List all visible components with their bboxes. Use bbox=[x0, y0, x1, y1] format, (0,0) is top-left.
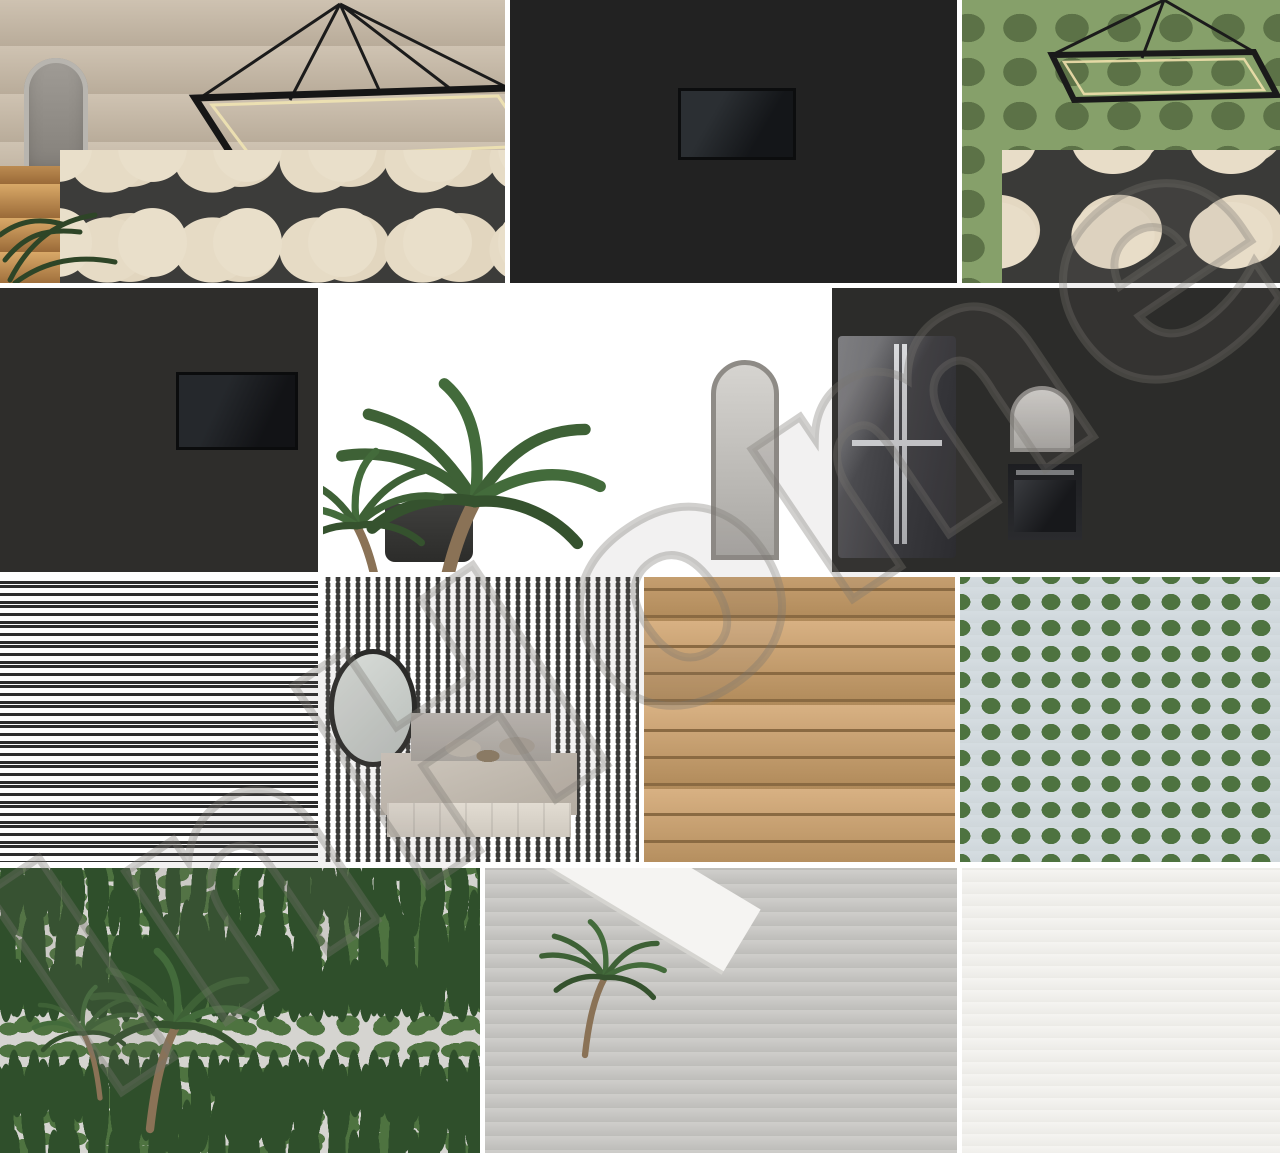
fridge bbox=[838, 336, 956, 558]
photo-bedroom bbox=[323, 577, 639, 862]
photo-kitchen-palm bbox=[323, 288, 827, 572]
photo-living-room-tv bbox=[510, 0, 957, 283]
photo-living-room-media-wall bbox=[0, 288, 318, 572]
tv-screen bbox=[176, 372, 298, 450]
palm-tree-icon bbox=[0, 868, 480, 1153]
chandelier-icon bbox=[992, 0, 1272, 130]
photo-bathroom-vanity bbox=[0, 577, 318, 862]
photo-villa-terrace bbox=[485, 868, 957, 1153]
arched-artwork bbox=[1010, 386, 1074, 452]
photo-bathroom-wc bbox=[644, 577, 955, 862]
dining-set bbox=[1002, 150, 1280, 283]
photo-living-dining-room bbox=[0, 0, 505, 283]
photo-pool-terrace bbox=[960, 577, 1280, 862]
photo-apartment-building bbox=[962, 868, 1280, 1153]
palm-tree-icon bbox=[525, 868, 725, 1028]
built-in-oven bbox=[1008, 464, 1082, 540]
tv-screen bbox=[678, 88, 796, 160]
bed bbox=[381, 695, 577, 845]
plant-fronds-icon bbox=[0, 140, 150, 283]
collage-canvas: InHome bbox=[0, 0, 1280, 1153]
photo-dining-room-chandelier bbox=[962, 0, 1280, 283]
photo-garden-pool bbox=[0, 868, 480, 1153]
photo-kitchen-fridge bbox=[832, 288, 1280, 572]
arched-artwork bbox=[711, 360, 779, 560]
palm-plant-icon bbox=[323, 288, 583, 568]
